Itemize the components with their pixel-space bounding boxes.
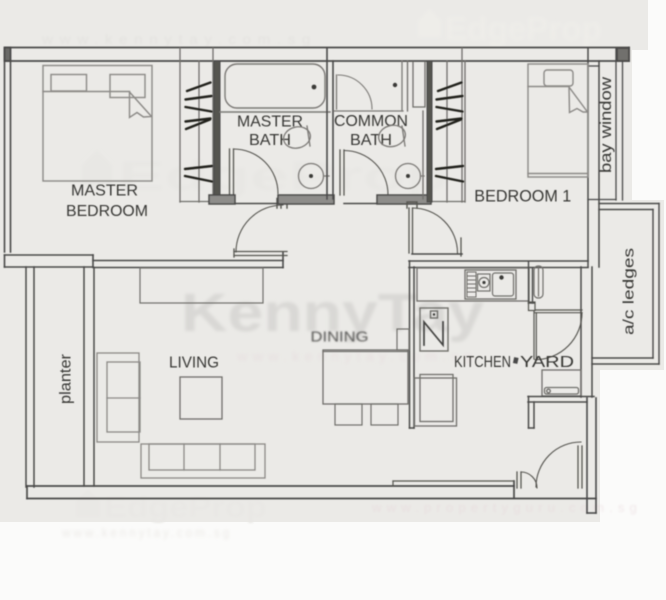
svg-text:YARD: YARD <box>520 354 574 371</box>
svg-text:BEDROOM 1: BEDROOM 1 <box>474 187 571 205</box>
svg-text:MASTER: MASTER <box>71 183 138 200</box>
svg-text:a/c ledges: a/c ledges <box>621 248 638 335</box>
svg-text:EdgeProp: EdgeProp <box>118 152 448 199</box>
svg-text:KITCHEN: KITCHEN <box>454 354 511 371</box>
svg-text:LIVING: LIVING <box>169 355 219 372</box>
svg-text:www.kennytay.com.sg: www.kennytay.com.sg <box>61 525 232 540</box>
svg-text:COMMON: COMMON <box>334 113 408 130</box>
svg-text:DINING: DINING <box>311 329 369 346</box>
svg-text:planter: planter <box>58 354 75 404</box>
svg-text:EdgeProp: EdgeProp <box>104 491 267 524</box>
svg-text:www.kennytay.com.sg: www.kennytay.com.sg <box>41 31 317 47</box>
svg-text:EdgeProp: EdgeProp <box>445 10 602 47</box>
svg-text:BEDROOM: BEDROOM <box>66 203 148 220</box>
svg-text:bay window: bay window <box>598 76 615 173</box>
svg-text:www.propertyguru.com.sg: www.propertyguru.com.sg <box>371 500 642 515</box>
